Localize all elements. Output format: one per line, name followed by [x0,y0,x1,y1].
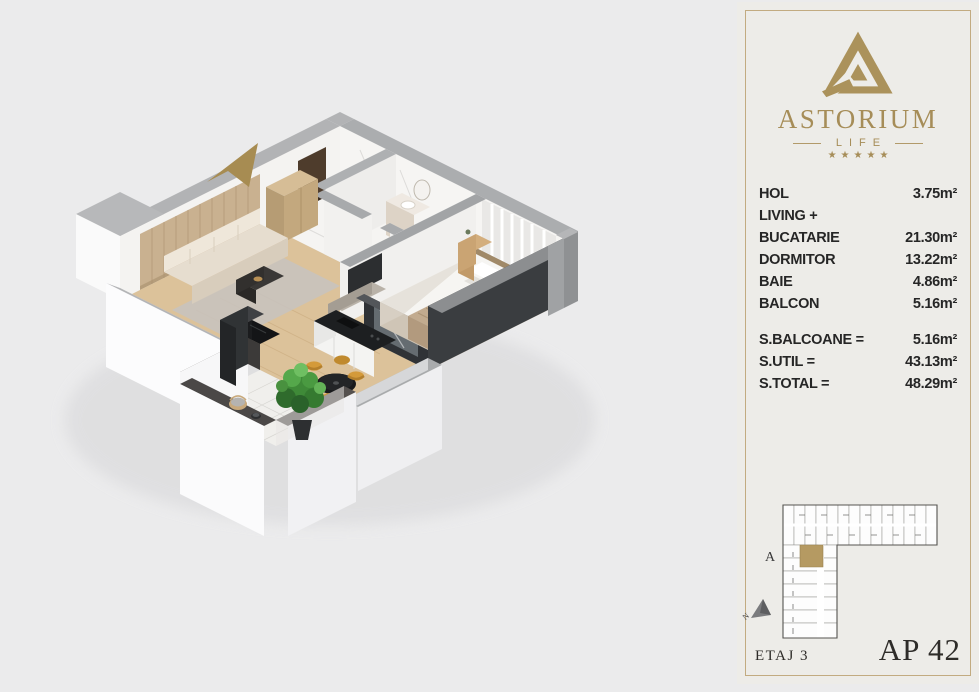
room-row: HOL3.75m² [759,186,957,208]
room-row: BALCON5.16m² [759,296,957,318]
total-row: S.TOTAL =48.29m² [759,376,957,398]
room-value: 4.86m² [913,274,957,290]
info-panel: ASTORIUM LIFE ★★★★★ HOL3.75m² LIVING + B… [737,2,979,684]
room-label: BALCON [759,296,819,312]
bathroom-mirror [414,180,430,200]
apartment-isometric [0,0,740,692]
brand-name: ASTORIUM [737,104,979,135]
room-value: 5.16m² [913,296,957,312]
room-label: BAIE [759,274,792,290]
room-label: LIVING + [759,208,817,224]
total-value: 43.13m² [905,354,957,370]
room-label: BUCATARIE [759,230,840,246]
room-row: DORMITOR13.22m² [759,252,957,274]
north-arrow-icon [743,596,777,626]
total-value: 48.29m² [905,376,957,392]
brand-block: ASTORIUM LIFE ★★★★★ [737,30,979,161]
page: { "panel": { "background": "#EDECE8", "b… [0,0,979,692]
room-row: LIVING + [759,208,957,230]
room-list: HOL3.75m² LIVING + BUCATARIE21.30m² DORM… [759,186,957,318]
totals-list: S.BALCOANE =5.16m² S.UTIL =43.13m² S.TOT… [759,332,957,398]
brand-tagline: LIFE [737,137,979,149]
bathroom-sink [401,201,415,209]
room-row: BUCATARIE21.30m² [759,230,957,252]
total-label: S.BALCOANE = [759,332,864,348]
brand-logo-icon [822,30,894,98]
total-row: S.BALCOANE =5.16m² [759,332,957,354]
floor-label: ETAJ 3 [755,648,809,665]
tagline-rule-right [895,143,923,144]
total-value: 5.16m² [913,332,957,348]
room-value: 21.30m² [905,230,957,246]
block-label: A [765,550,775,566]
room-value: 3.75m² [913,186,957,202]
apartment-label: AP 42 [879,632,961,668]
room-row: BAIE4.86m² [759,274,957,296]
total-row: S.UTIL =43.13m² [759,354,957,376]
brand-stars: ★★★★★ [737,150,979,161]
tagline-rule-left [793,143,821,144]
panel-footer: ETAJ 3 AP 42 [755,632,961,668]
highlighted-apartment [800,545,823,567]
site-plan [757,500,957,648]
north-indicator: N [743,596,777,626]
room-label: HOL [759,186,789,202]
room-value: 13.22m² [905,252,957,268]
total-label: S.TOTAL = [759,376,829,392]
room-label: DORMITOR [759,252,835,268]
total-label: S.UTIL = [759,354,815,370]
floor-plan-render [0,0,740,692]
tagline-text: LIFE [829,137,887,149]
